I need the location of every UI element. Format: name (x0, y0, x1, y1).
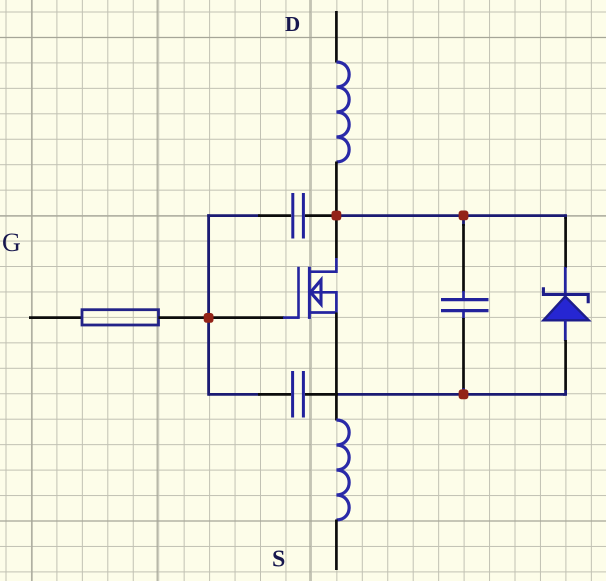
svg-text:G: G (2, 228, 21, 257)
svg-text:S: S (272, 547, 285, 573)
svg-text:D: D (285, 12, 300, 36)
